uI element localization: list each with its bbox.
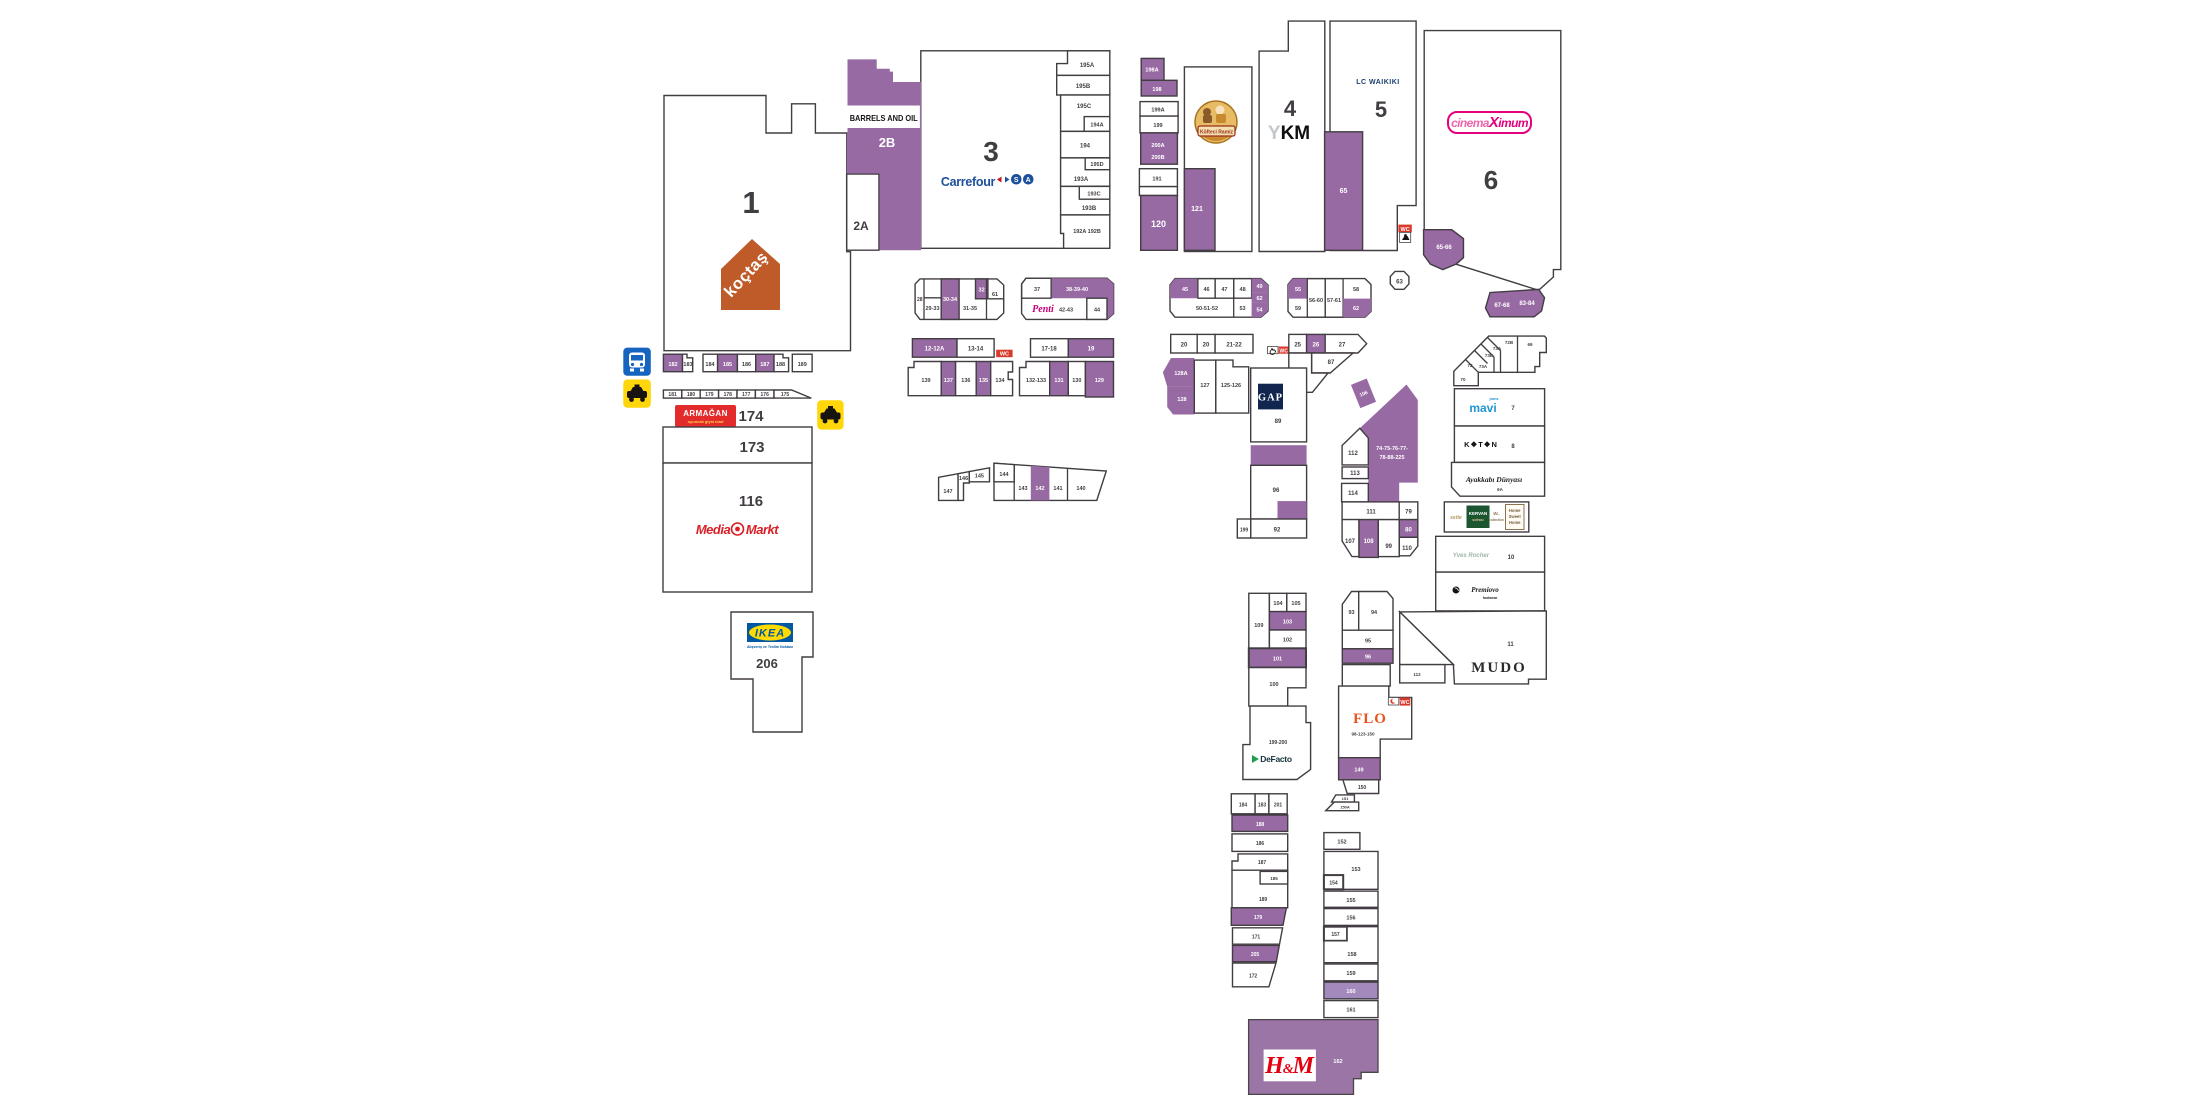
svg-text:153: 153 <box>1351 867 1360 873</box>
svg-text:sette: sette <box>1450 515 1462 521</box>
svg-text:114: 114 <box>1348 491 1358 497</box>
svg-text:87: 87 <box>1328 360 1335 366</box>
svg-text:137: 137 <box>944 378 953 384</box>
svg-text:53: 53 <box>1239 306 1245 312</box>
svg-text:187: 187 <box>1258 860 1267 866</box>
svg-text:136: 136 <box>961 378 970 384</box>
svg-text:92: 92 <box>1274 528 1281 534</box>
svg-text:150A: 150A <box>1340 805 1350 810</box>
svg-text:jeans: jeans <box>1489 397 1499 401</box>
svg-text:151: 151 <box>1342 796 1349 801</box>
svg-text:112: 112 <box>1348 451 1358 457</box>
svg-text:194A: 194A <box>1090 123 1103 129</box>
svg-text:205: 205 <box>1251 952 1260 958</box>
svg-text:56-60: 56-60 <box>1309 298 1323 304</box>
svg-text:6: 6 <box>1484 165 1498 195</box>
svg-text:188: 188 <box>776 362 785 368</box>
svg-text:143: 143 <box>1018 486 1027 492</box>
svg-text:6A: 6A <box>1497 487 1504 492</box>
svg-text:WC: WC <box>1000 352 1009 358</box>
svg-text:10: 10 <box>1508 555 1515 561</box>
svg-text:ARMAĞAN: ARMAĞAN <box>683 409 728 418</box>
svg-text:131: 131 <box>1054 378 1063 384</box>
svg-text:62: 62 <box>1353 306 1359 312</box>
svg-text:12-12A: 12-12A <box>925 347 945 353</box>
svg-text:156: 156 <box>1346 916 1355 922</box>
svg-text:145: 145 <box>975 474 984 480</box>
svg-text:1: 1 <box>742 185 759 220</box>
svg-text:109: 109 <box>1254 623 1263 629</box>
svg-text:55: 55 <box>1295 287 1301 293</box>
svg-text:25: 25 <box>1294 343 1301 349</box>
svg-text:189: 189 <box>798 362 807 368</box>
svg-text:45: 45 <box>1182 287 1188 293</box>
svg-text:96: 96 <box>1365 655 1371 661</box>
svg-text:30-34: 30-34 <box>943 297 958 303</box>
svg-text:104: 104 <box>1273 601 1283 607</box>
svg-text:185: 185 <box>1270 876 1278 881</box>
svg-text:A: A <box>1026 177 1031 184</box>
svg-text:120: 120 <box>1151 219 1166 229</box>
svg-text:171: 171 <box>1252 935 1261 941</box>
svg-text:74-75-76-77-: 74-75-76-77- <box>1376 446 1408 452</box>
svg-text:103: 103 <box>1283 620 1292 626</box>
svg-text:140: 140 <box>1076 486 1085 492</box>
svg-text:194: 194 <box>1080 144 1091 150</box>
svg-text:S: S <box>1014 177 1019 184</box>
svg-text:46: 46 <box>1203 287 1209 293</box>
svg-text:BARRELS AND OIL: BARRELS AND OIL <box>850 113 918 123</box>
svg-text:147: 147 <box>943 489 952 495</box>
svg-text:oyuncak giysi mad: oyuncak giysi mad <box>688 419 724 424</box>
svg-text:152: 152 <box>1337 840 1346 846</box>
svg-text:183: 183 <box>1258 803 1267 809</box>
svg-text:195A: 195A <box>1080 63 1095 69</box>
svg-text:65-66: 65-66 <box>1436 245 1452 251</box>
svg-text:Premiovo: Premiovo <box>1471 586 1499 594</box>
svg-text:176: 176 <box>761 392 770 398</box>
svg-text:50-51-52: 50-51-52 <box>1196 306 1218 312</box>
svg-text:195D: 195D <box>1090 162 1103 168</box>
svg-text:sofrası: sofrası <box>1472 518 1484 522</box>
svg-text:111: 111 <box>1366 510 1376 516</box>
svg-text:129: 129 <box>1095 378 1104 384</box>
svg-text:4: 4 <box>1284 96 1297 121</box>
svg-text:17-18: 17-18 <box>1041 347 1057 353</box>
svg-text:IKEA: IKEA <box>755 628 785 640</box>
svg-text:179: 179 <box>705 392 714 398</box>
svg-text:108: 108 <box>1364 539 1375 545</box>
svg-text:192A 192B: 192A 192B <box>1073 229 1101 235</box>
svg-text:185: 185 <box>723 362 732 368</box>
svg-text:200A: 200A <box>1151 143 1164 149</box>
svg-text:179: 179 <box>1254 915 1263 921</box>
svg-text:29-33: 29-33 <box>925 306 939 312</box>
svg-text:139: 139 <box>921 378 930 384</box>
svg-text:63: 63 <box>1396 280 1403 286</box>
svg-text:WC: WC <box>1400 700 1409 706</box>
svg-text:186: 186 <box>742 362 751 368</box>
svg-text:20: 20 <box>1181 343 1188 349</box>
svg-text:201: 201 <box>1274 803 1283 809</box>
svg-text:199A: 199A <box>1151 108 1164 114</box>
svg-text:157: 157 <box>1331 932 1340 938</box>
svg-text:160: 160 <box>1346 989 1355 995</box>
svg-text:128A: 128A <box>1174 371 1187 377</box>
svg-text:78-88-225: 78-88-225 <box>1379 455 1404 461</box>
svg-text:footwear: footwear <box>1483 596 1498 600</box>
svg-text:3: 3 <box>983 136 999 167</box>
svg-text:80: 80 <box>1405 528 1412 534</box>
svg-text:182: 182 <box>668 362 677 368</box>
svg-text:mavi: mavi <box>1469 401 1496 415</box>
svg-text:199: 199 <box>1240 528 1249 534</box>
svg-text:121: 121 <box>1191 206 1203 213</box>
svg-text:184: 184 <box>1239 803 1248 809</box>
svg-text:198A: 198A <box>1145 68 1158 74</box>
svg-text:11: 11 <box>1507 642 1514 648</box>
svg-text:57-61: 57-61 <box>1327 298 1341 304</box>
svg-text:DeFacto: DeFacto <box>1260 754 1292 764</box>
svg-text:K❖T❖N: K❖T❖N <box>1464 440 1498 449</box>
svg-text:130: 130 <box>1072 378 1081 384</box>
svg-text:93: 93 <box>1348 610 1354 616</box>
svg-text:73A: 73A <box>1479 364 1488 369</box>
svg-text:Home: Home <box>1509 508 1521 513</box>
svg-text:62: 62 <box>1256 296 1262 302</box>
svg-text:26: 26 <box>1313 343 1320 349</box>
svg-text:193B: 193B <box>1082 206 1097 212</box>
svg-text:101: 101 <box>1273 657 1282 663</box>
svg-text:73B: 73B <box>1485 353 1494 358</box>
svg-text:112: 112 <box>1413 672 1421 677</box>
svg-text:172: 172 <box>1249 974 1258 980</box>
svg-text:70: 70 <box>1460 377 1466 382</box>
svg-text:59: 59 <box>1295 306 1301 312</box>
svg-text:155: 155 <box>1346 898 1355 904</box>
svg-text:WC: WC <box>1280 348 1289 354</box>
svg-text:144: 144 <box>999 472 1009 478</box>
svg-text:161: 161 <box>1346 1008 1355 1014</box>
svg-text:150: 150 <box>1358 785 1367 791</box>
svg-text:162: 162 <box>1333 1059 1342 1065</box>
svg-text:27: 27 <box>1339 343 1346 349</box>
svg-text:189: 189 <box>1259 897 1268 903</box>
svg-text:178: 178 <box>724 392 733 398</box>
svg-text:175: 175 <box>781 392 790 398</box>
svg-text:collection: collection <box>1489 518 1504 522</box>
svg-text:199: 199 <box>1153 123 1162 129</box>
svg-text:37: 37 <box>1034 287 1040 293</box>
svg-text:49: 49 <box>1256 284 1262 290</box>
svg-text:2B: 2B <box>879 135 896 150</box>
svg-text:MUDO: MUDO <box>1471 660 1527 676</box>
svg-text:Carrefour: Carrefour <box>941 175 996 189</box>
svg-text:42-43: 42-43 <box>1059 308 1073 314</box>
svg-text:79: 79 <box>1405 510 1412 516</box>
svg-text:19: 19 <box>1088 347 1095 353</box>
svg-text:125-126: 125-126 <box>1221 383 1241 389</box>
svg-text:193A: 193A <box>1074 177 1089 183</box>
svg-text:94: 94 <box>1371 610 1378 616</box>
svg-text:206: 206 <box>756 656 778 671</box>
svg-text:Alışveriş ve Teslim Noktası: Alışveriş ve Teslim Noktası <box>747 645 793 649</box>
svg-text:181: 181 <box>668 392 677 398</box>
svg-text:Media: Media <box>696 522 731 537</box>
svg-text:61: 61 <box>992 292 998 298</box>
svg-text:73A: 73A <box>1493 346 1502 351</box>
svg-text:195B: 195B <box>1076 84 1091 90</box>
svg-text:128: 128 <box>1177 397 1186 403</box>
svg-text:99: 99 <box>1385 544 1392 550</box>
svg-text:44: 44 <box>1094 308 1101 314</box>
svg-text:107: 107 <box>1345 539 1356 545</box>
svg-text:58: 58 <box>1353 287 1359 293</box>
svg-text:YKM: YKM <box>1268 123 1310 144</box>
svg-text:47: 47 <box>1221 287 1227 293</box>
svg-text:105: 105 <box>1291 601 1300 607</box>
svg-text:95: 95 <box>1365 639 1371 645</box>
svg-text:83-84: 83-84 <box>1519 301 1535 307</box>
svg-text:177: 177 <box>742 392 751 398</box>
svg-text:132-133: 132-133 <box>1026 378 1046 384</box>
svg-text:199-200: 199-200 <box>1269 740 1288 746</box>
svg-text:Markt: Markt <box>746 522 779 537</box>
svg-text:cinemaXimum: cinemaXimum <box>1451 114 1529 131</box>
svg-text:158: 158 <box>1347 952 1356 958</box>
svg-text:159: 159 <box>1346 971 1355 977</box>
svg-text:186: 186 <box>1256 841 1265 847</box>
svg-text:184: 184 <box>705 362 715 368</box>
svg-text:69: 69 <box>1527 342 1533 347</box>
svg-text:2A: 2A <box>853 219 869 233</box>
svg-text:5: 5 <box>1375 97 1387 122</box>
svg-text:Home: Home <box>1509 520 1521 525</box>
svg-text:187: 187 <box>760 362 769 368</box>
svg-text:65: 65 <box>1340 188 1348 195</box>
svg-text:116: 116 <box>739 493 763 510</box>
svg-text:Ayakkabı Dünyası: Ayakkabı Dünyası <box>1465 475 1522 484</box>
svg-text:149: 149 <box>1354 768 1363 774</box>
svg-text:21-22: 21-22 <box>1226 343 1242 349</box>
svg-text:38-39-40: 38-39-40 <box>1066 287 1088 293</box>
svg-text:W..: W.. <box>1493 511 1499 516</box>
svg-text:13-14: 13-14 <box>968 347 984 353</box>
svg-text:191: 191 <box>1152 177 1161 183</box>
svg-text:72: 72 <box>1467 363 1473 368</box>
svg-text:28: 28 <box>917 297 923 303</box>
svg-text:174: 174 <box>738 408 764 425</box>
svg-text:FLO: FLO <box>1353 711 1387 727</box>
svg-text:142: 142 <box>1035 486 1044 492</box>
svg-text:20: 20 <box>1203 343 1210 349</box>
svg-text:113: 113 <box>1350 471 1360 477</box>
svg-text:WC: WC <box>1401 227 1410 233</box>
svg-text:146: 146 <box>959 476 968 482</box>
svg-text:195C: 195C <box>1077 104 1092 110</box>
svg-text:Köfteci Ramiz: Köfteci Ramiz <box>1200 130 1234 136</box>
svg-text:Yves Rocher: Yves Rocher <box>1453 553 1490 559</box>
svg-text:183: 183 <box>683 362 692 368</box>
svg-text:48: 48 <box>1240 287 1246 293</box>
svg-text:180: 180 <box>687 392 696 398</box>
svg-text:154: 154 <box>1329 881 1338 887</box>
svg-text:Penti: Penti <box>1032 304 1054 315</box>
svg-text:LC WAIKIKI: LC WAIKIKI <box>1356 79 1400 86</box>
svg-text:198: 198 <box>1152 87 1161 93</box>
svg-text:102: 102 <box>1283 638 1292 644</box>
svg-text:110: 110 <box>1402 546 1412 552</box>
svg-text:KERVAN: KERVAN <box>1469 511 1488 516</box>
svg-text:100: 100 <box>1269 682 1278 688</box>
svg-text:127: 127 <box>1200 383 1209 389</box>
svg-text:89: 89 <box>1275 419 1282 425</box>
svg-text:67-68: 67-68 <box>1494 303 1510 309</box>
svg-text:54: 54 <box>1256 308 1263 314</box>
svg-text:200B: 200B <box>1151 155 1164 161</box>
svg-text:135: 135 <box>979 378 988 384</box>
svg-text:72B: 72B <box>1505 340 1514 345</box>
svg-text:Sweet: Sweet <box>1509 514 1522 519</box>
svg-text:98-123-150: 98-123-150 <box>1351 732 1375 737</box>
svg-text:GAP: GAP <box>1258 393 1283 404</box>
svg-text:193C: 193C <box>1087 192 1100 198</box>
svg-text:173: 173 <box>739 439 764 456</box>
svg-text:96: 96 <box>1273 488 1280 494</box>
svg-text:188: 188 <box>1256 822 1265 828</box>
svg-text:134: 134 <box>995 378 1005 384</box>
svg-text:31-35: 31-35 <box>963 306 977 312</box>
svg-text:141: 141 <box>1053 486 1062 492</box>
svg-text:32: 32 <box>979 288 985 294</box>
